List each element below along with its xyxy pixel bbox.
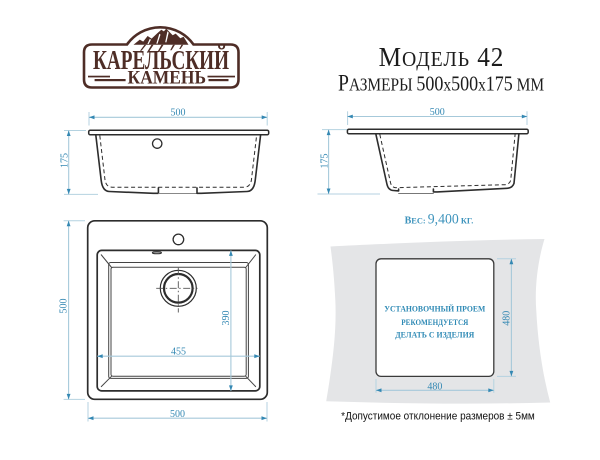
svg-text:УСТАНОВОЧНЫЙ ПРОЕМ: УСТАНОВОЧНЫЙ ПРОЕМ — [384, 304, 486, 314]
svg-text:КАМЕНЬ: КАМЕНЬ — [128, 68, 207, 89]
svg-text:ДЕЛАТЬ С ИЗДЕЛИЯ: ДЕЛАТЬ С ИЗДЕЛИЯ — [395, 330, 475, 340]
svg-text:*Допустимое отклонение размеро: *Допустимое отклонение размеров ± 5мм — [341, 410, 535, 423]
svg-text:РЕКОМЕНДУЕТСЯ: РЕКОМЕНДУЕТСЯ — [401, 317, 469, 327]
svg-text:500: 500 — [171, 108, 186, 119]
svg-text:480: 480 — [501, 311, 512, 326]
svg-text:500: 500 — [170, 409, 185, 420]
svg-text:500: 500 — [430, 107, 445, 118]
svg-text:480: 480 — [427, 381, 442, 392]
svg-text:455: 455 — [171, 346, 186, 357]
svg-text:МОДЕЛЬ 42: МОДЕЛЬ 42 — [379, 41, 505, 72]
svg-text:500: 500 — [58, 299, 69, 314]
svg-text:РАЗМЕРЫ 500х500х175 ММ: РАЗМЕРЫ 500х500х175 ММ — [338, 70, 544, 96]
svg-text:175: 175 — [59, 153, 70, 168]
svg-text:390: 390 — [221, 311, 232, 326]
svg-text:ВЕС: 9,400 КГ.: ВЕС: 9,400 КГ. — [405, 211, 474, 227]
svg-text:175: 175 — [319, 154, 330, 169]
